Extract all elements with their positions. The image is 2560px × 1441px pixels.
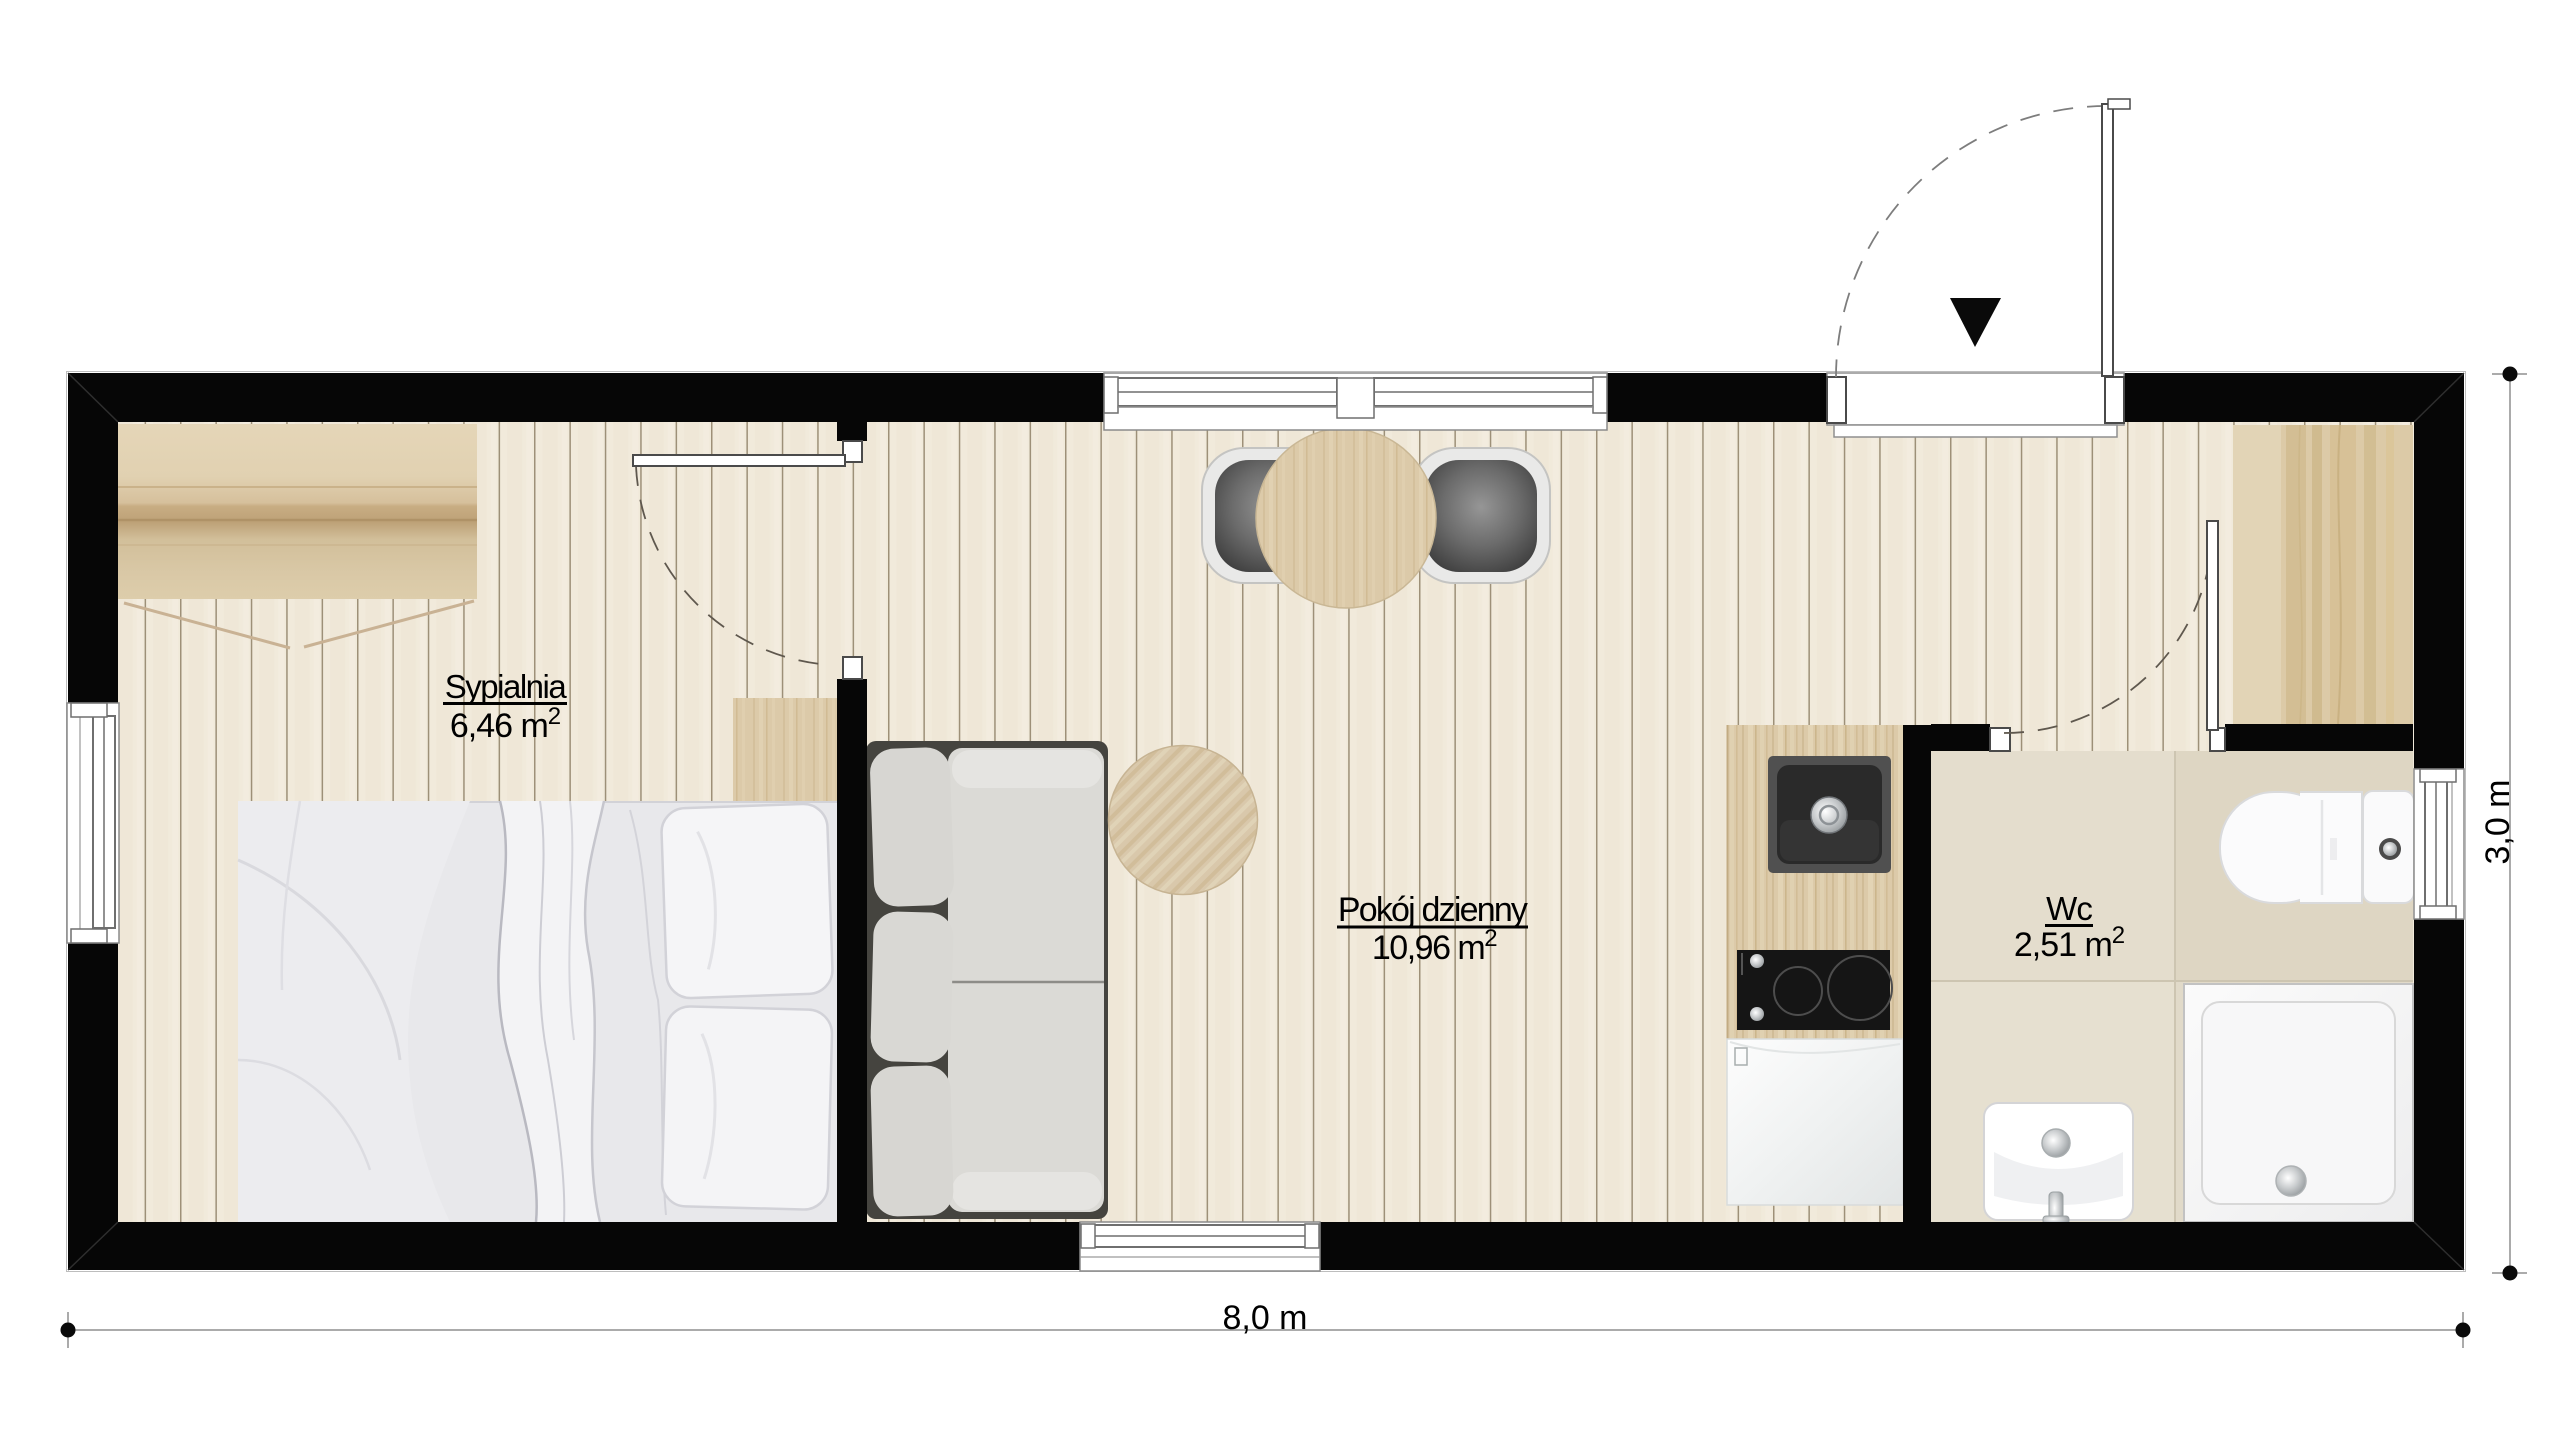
svg-text:10,96 m2: 10,96 m2 — [1372, 925, 1497, 967]
svg-text:2,51 m2: 2,51 m2 — [2014, 922, 2125, 964]
svg-text:Sypialnia: Sypialnia — [445, 668, 568, 705]
svg-text:6,46 m2: 6,46 m2 — [450, 703, 561, 745]
svg-text:Wc: Wc — [2046, 890, 2092, 927]
svg-text:3,0 m: 3,0 m — [2479, 779, 2517, 864]
svg-text:8,0 m: 8,0 m — [1222, 1299, 1307, 1337]
svg-text:Pokój dzienny: Pokój dzienny — [1338, 891, 1528, 929]
